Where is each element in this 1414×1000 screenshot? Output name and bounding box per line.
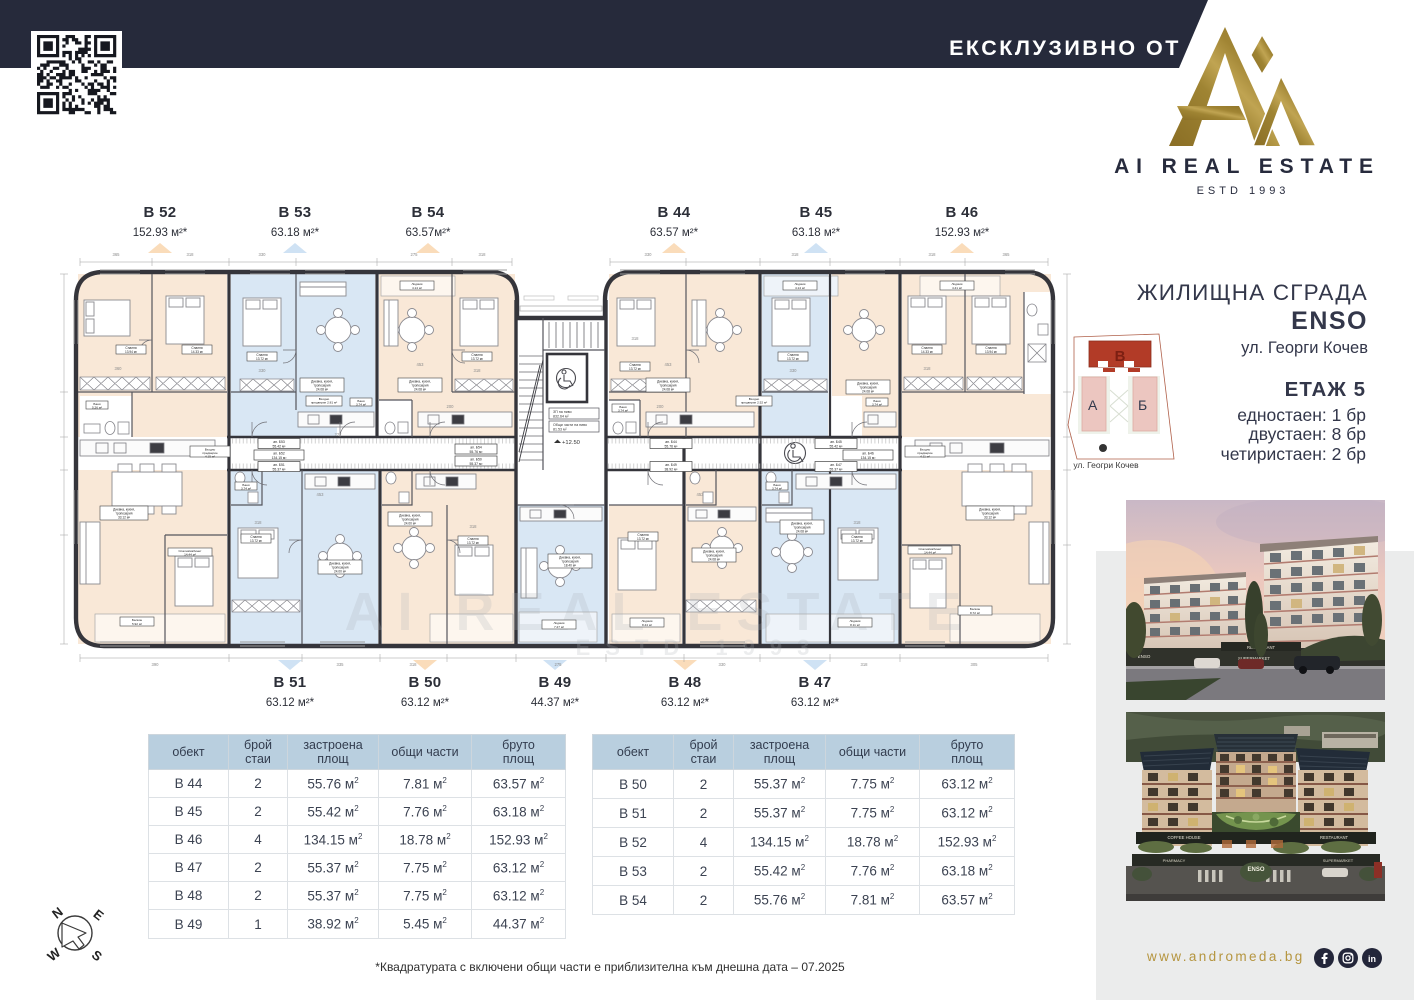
svg-text:5.92 м²: 5.92 м² xyxy=(132,622,142,626)
svg-text:330: 330 xyxy=(259,252,267,257)
svg-text:305: 305 xyxy=(971,662,979,667)
svg-text:318: 318 xyxy=(924,366,932,371)
svg-text:38.92 м²: 38.92 м² xyxy=(665,468,679,472)
svg-text:4.14 м²: 4.14 м² xyxy=(412,286,422,290)
svg-text:390: 390 xyxy=(152,662,160,667)
svg-text:24.00 м²: 24.00 м² xyxy=(334,570,346,574)
svg-text:ап. Б50: ап. Б50 xyxy=(470,458,482,462)
svg-text:24.08 м²: 24.08 м² xyxy=(708,558,720,562)
svg-text:330: 330 xyxy=(790,368,798,373)
svg-text:COFFEE HOUSE: COFFEE HOUSE xyxy=(1167,835,1200,840)
svg-text:453: 453 xyxy=(317,492,325,497)
svg-text:275: 275 xyxy=(411,252,419,257)
svg-text:ап. Б46: ап. Б46 xyxy=(862,452,874,456)
svg-text:3.74 м²: 3.74 м² xyxy=(618,408,628,412)
svg-text:SUPERMARKET: SUPERMARKET xyxy=(1323,858,1354,863)
svg-text:13.94 м²: 13.94 м² xyxy=(125,350,137,354)
svg-text:14.33 м²: 14.33 м² xyxy=(191,350,203,354)
svg-text:5.26 м²: 5.26 м² xyxy=(92,405,102,409)
svg-text:13.72 м²: 13.72 м² xyxy=(256,357,268,361)
svg-text:4.41 м²: 4.41 м² xyxy=(952,286,962,290)
svg-text:55.37 м²: 55.37 м² xyxy=(273,468,287,472)
svg-text:Общи части на ниво: Общи части на ниво xyxy=(553,423,587,427)
svg-text:N: N xyxy=(49,904,66,922)
svg-text:ап. Б45: ап. Б45 xyxy=(830,440,842,444)
svg-text:4.11 м²: 4.11 м² xyxy=(920,455,930,459)
svg-text:3.74 м²: 3.74 м² xyxy=(356,402,366,406)
svg-text:13.94 м²: 13.94 м² xyxy=(985,350,997,354)
svg-text:RESTAURANT: RESTAURANT xyxy=(1320,835,1349,840)
svg-text:55.76 м²: 55.76 м² xyxy=(470,450,484,454)
svg-text:13.72 м²: 13.72 м² xyxy=(637,537,649,541)
svg-text:13.72 м²: 13.72 м² xyxy=(787,357,799,361)
svg-text:24.08 м²: 24.08 м² xyxy=(414,388,426,392)
svg-text:55.37 м²: 55.37 м² xyxy=(830,468,844,472)
svg-text:4.14 м²: 4.14 м² xyxy=(795,286,805,290)
svg-text:318: 318 xyxy=(255,520,263,525)
svg-text:200: 200 xyxy=(657,404,665,409)
svg-text:365: 365 xyxy=(1003,252,1011,257)
svg-text:3.74 м²: 3.74 м² xyxy=(772,486,782,490)
svg-text:+12.50: +12.50 xyxy=(562,440,580,446)
svg-text:А: А xyxy=(1088,397,1098,413)
svg-text:200: 200 xyxy=(447,404,455,409)
svg-text:55.42 м²: 55.42 м² xyxy=(830,445,844,449)
svg-text:318: 318 xyxy=(410,662,418,667)
svg-text:24.00 м²: 24.00 м² xyxy=(404,522,416,526)
svg-text:318: 318 xyxy=(792,252,800,257)
svg-text:8.11 м²: 8.11 м² xyxy=(850,623,860,627)
svg-text:318: 318 xyxy=(632,336,640,341)
svg-text:318: 318 xyxy=(854,520,862,525)
svg-text:13.72 м²: 13.72 м² xyxy=(471,357,483,361)
svg-text:24.08 м²: 24.08 м² xyxy=(316,388,328,392)
svg-text:18.40 м²: 18.40 м² xyxy=(564,564,576,568)
svg-text:W: W xyxy=(44,944,63,964)
svg-text:4.15 м²: 4.15 м² xyxy=(205,455,215,459)
svg-text:14.44 м²: 14.44 м² xyxy=(924,551,936,555)
svg-text:318: 318 xyxy=(479,252,487,257)
svg-text:318: 318 xyxy=(474,368,482,373)
svg-text:Б: Б xyxy=(1138,397,1147,413)
svg-text:13.72 м²: 13.72 м² xyxy=(851,539,863,543)
svg-text:8.44 м²: 8.44 м² xyxy=(642,623,652,627)
svg-text:55.42 м²: 55.42 м² xyxy=(273,445,287,449)
svg-text:330: 330 xyxy=(259,368,267,373)
svg-text:ап. Б54: ап. Б54 xyxy=(470,446,482,450)
svg-text:ул. Геогри Кочев: ул. Геогри Кочев xyxy=(1073,460,1139,470)
svg-text:ап. Б51: ап. Б51 xyxy=(273,463,285,467)
svg-text:318: 318 xyxy=(470,524,478,529)
svg-text:453: 453 xyxy=(417,362,425,367)
svg-text:453: 453 xyxy=(697,492,705,497)
svg-text:ап. Б52: ап. Б52 xyxy=(273,452,285,456)
svg-text:24.08 м²: 24.08 м² xyxy=(662,388,674,392)
svg-text:предверие 2.81 м²: предверие 2.81 м² xyxy=(311,401,337,405)
svg-text:81.53 м²: 81.53 м² xyxy=(553,428,567,432)
svg-text:предверие 2.52 м²: предверие 2.52 м² xyxy=(741,401,767,405)
svg-text:330: 330 xyxy=(645,252,653,257)
svg-text:55.37 м²: 55.37 м² xyxy=(470,462,484,466)
svg-text:24.08 м²: 24.08 м² xyxy=(862,390,874,394)
svg-text:13.72 м²: 13.72 м² xyxy=(467,541,479,545)
svg-text:8.72 м²: 8.72 м² xyxy=(970,611,980,615)
svg-text:3.74 м²: 3.74 м² xyxy=(241,486,251,490)
svg-text:ап. Б44: ап. Б44 xyxy=(665,440,677,444)
svg-text:360: 360 xyxy=(115,366,123,371)
svg-text:318: 318 xyxy=(929,252,937,257)
svg-text:ESTD 1993: ESTD 1993 xyxy=(576,635,825,660)
svg-text:in: in xyxy=(1368,954,1376,964)
svg-text:ап. Б53: ап. Б53 xyxy=(273,440,285,444)
svg-text:13.72 м²: 13.72 м² xyxy=(250,539,262,543)
svg-text:PHARMACY: PHARMACY xyxy=(1163,858,1186,863)
svg-text:134.15 м²: 134.15 м² xyxy=(272,456,288,460)
svg-text:24.08 м²: 24.08 м² xyxy=(796,530,808,534)
svg-text:ENSO: ENSO xyxy=(1247,867,1264,873)
svg-text:ап. Б49: ап. Б49 xyxy=(665,463,677,467)
svg-text:3.74 м²: 3.74 м² xyxy=(872,402,882,406)
svg-text:134.15 м²: 134.15 м² xyxy=(861,456,877,460)
svg-text:AI REAL ESTATE: AI REAL ESTATE xyxy=(344,582,975,642)
svg-text:832.64 м²: 832.64 м² xyxy=(553,415,569,419)
svg-text:33.12 м²: 33.12 м² xyxy=(118,516,130,520)
svg-text:S: S xyxy=(89,947,105,964)
svg-text:330: 330 xyxy=(719,662,727,667)
svg-text:453: 453 xyxy=(665,362,673,367)
svg-text:365: 365 xyxy=(113,252,121,257)
svg-text:33.12 м²: 33.12 м² xyxy=(984,516,996,520)
svg-text:7.27 м²: 7.27 м² xyxy=(554,625,564,629)
svg-text:ап. Б47: ап. Б47 xyxy=(830,463,842,467)
svg-text:E: E xyxy=(91,906,107,923)
svg-text:14.44 м²: 14.44 м² xyxy=(184,553,196,557)
svg-text:275: 275 xyxy=(555,662,563,667)
svg-text:335: 335 xyxy=(337,662,345,667)
svg-text:ЗП на ниво: ЗП на ниво xyxy=(553,410,572,414)
svg-text:13.72 м²: 13.72 м² xyxy=(629,367,641,371)
svg-text:55.76 м²: 55.76 м² xyxy=(665,445,679,449)
svg-text:14.33 м²: 14.33 м² xyxy=(921,350,933,354)
svg-text:318: 318 xyxy=(187,252,195,257)
svg-text:222: 222 xyxy=(335,432,343,437)
svg-text:318: 318 xyxy=(861,662,869,667)
svg-text:В: В xyxy=(1115,348,1126,365)
